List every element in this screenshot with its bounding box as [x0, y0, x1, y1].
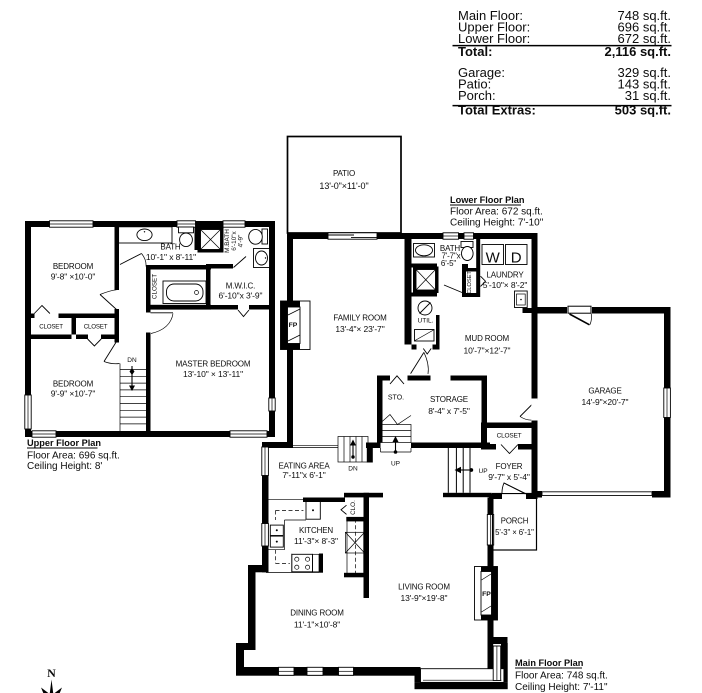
- svg-text:PORCH: PORCH: [501, 517, 528, 526]
- svg-text:BEDROOM: BEDROOM: [53, 380, 94, 389]
- svg-text:Total Extras:: Total Extras:: [458, 102, 536, 117]
- svg-text:BATH: BATH: [160, 243, 181, 252]
- svg-text:5'-10"× 8'-2": 5'-10"× 8'-2": [483, 280, 528, 290]
- svg-text:Floor Area: 696 sq.ft.: Floor Area: 696 sq.ft.: [27, 451, 120, 462]
- svg-text:Lower Floor Plan: Lower Floor Plan: [450, 195, 525, 205]
- svg-text:FP: FP: [482, 591, 491, 598]
- svg-text:MASTER BEDROOM: MASTER BEDROOM: [176, 360, 251, 369]
- svg-text:UTIL.: UTIL.: [418, 318, 434, 325]
- svg-text:Main Floor Plan: Main Floor Plan: [515, 658, 584, 668]
- svg-text:CLOSET: CLOSET: [152, 274, 159, 299]
- svg-text:13'-4"× 23'-7": 13'-4"× 23'-7": [335, 324, 384, 334]
- svg-text:4'-9": 4'-9": [238, 235, 245, 248]
- svg-text:FAMILY ROOM: FAMILY ROOM: [333, 314, 387, 323]
- svg-text:Ceiling Height: 7'-10": Ceiling Height: 7'-10": [450, 217, 544, 228]
- svg-text:13'-9"×19'-8": 13'-9"×19'-8": [401, 593, 448, 603]
- svg-text:8'-4" x 7'-5": 8'-4" x 7'-5": [428, 406, 470, 416]
- svg-text:9'-7" x 5'-4": 9'-7" x 5'-4": [488, 472, 530, 482]
- svg-text:CLOSET: CLOSET: [39, 324, 63, 331]
- svg-text:Ceiling Height: 7'-11": Ceiling Height: 7'-11": [515, 682, 608, 693]
- svg-text:Ceiling Height: 8': Ceiling Height: 8': [27, 461, 102, 472]
- svg-text:Floor Area: 748 sq.ft.: Floor Area: 748 sq.ft.: [515, 671, 608, 682]
- svg-text:FOYER: FOYER: [496, 462, 523, 471]
- svg-text:CLO.: CLO.: [350, 500, 357, 515]
- svg-text:D: D: [511, 250, 522, 267]
- svg-text:9'-9" ×10'-7": 9'-9" ×10'-7": [51, 389, 96, 399]
- svg-text:Porch:: Porch:: [458, 88, 496, 103]
- svg-text:11'-1"×10'-8": 11'-1"×10'-8": [294, 620, 340, 630]
- svg-text:N: N: [47, 666, 56, 680]
- svg-text:CLOSET: CLOSET: [467, 271, 473, 294]
- svg-text:UP: UP: [391, 461, 400, 468]
- svg-text:7'-11"x 6'-1": 7'-11"x 6'-1": [282, 470, 325, 480]
- svg-text:6'-5": 6'-5": [441, 259, 456, 268]
- svg-text:PATIO: PATIO: [333, 169, 355, 178]
- svg-text:14'-9"×20'-7": 14'-9"×20'-7": [582, 397, 629, 407]
- svg-text:DN: DN: [348, 466, 358, 473]
- svg-text:Floor Area: 672 sq.ft.: Floor Area: 672 sq.ft.: [450, 206, 543, 217]
- svg-text:MUD ROOM: MUD ROOM: [465, 334, 510, 343]
- svg-text:10'-7"×12'-7": 10'-7"×12'-7": [464, 346, 511, 356]
- svg-text:LIVING ROOM: LIVING ROOM: [398, 583, 450, 592]
- svg-text:BEDROOM: BEDROOM: [53, 262, 94, 271]
- svg-text:10'-1" x 8'-11": 10'-1" x 8'-11": [146, 252, 196, 262]
- svg-text:EATING AREA: EATING AREA: [278, 461, 330, 470]
- svg-text:31 sq.ft.: 31 sq.ft.: [625, 88, 671, 103]
- svg-text:LAUNDRY: LAUNDRY: [486, 271, 524, 280]
- svg-text:M.W.I.C.: M.W.I.C.: [226, 282, 255, 291]
- svg-text:13'-10" × 13'-11": 13'-10" × 13'-11": [183, 369, 243, 379]
- svg-text:Upper Floor Plan: Upper Floor Plan: [27, 438, 101, 448]
- svg-text:UP: UP: [479, 468, 488, 475]
- svg-text:STO.: STO.: [388, 395, 404, 402]
- svg-text:9'-8" ×10'-0": 9'-8" ×10'-0": [51, 272, 96, 282]
- svg-text:CLOSET: CLOSET: [497, 433, 522, 440]
- svg-text:STORAGE: STORAGE: [430, 395, 468, 404]
- svg-text:5'-3" × 6'-1": 5'-3" × 6'-1": [495, 528, 534, 537]
- svg-text:2,116 sq.ft.: 2,116 sq.ft.: [605, 44, 671, 59]
- svg-text:11'-3"× 8'-3": 11'-3"× 8'-3": [294, 536, 338, 546]
- svg-text:DN: DN: [127, 357, 137, 364]
- svg-text:Total:: Total:: [458, 44, 492, 59]
- svg-text:13'-0"×11'-0": 13'-0"×11'-0": [319, 181, 368, 191]
- svg-text:W: W: [486, 250, 501, 267]
- svg-text:6'-10"x 3'-9": 6'-10"x 3'-9": [219, 291, 263, 301]
- svg-text:CLOSET: CLOSET: [84, 324, 108, 331]
- svg-text:KITCHEN: KITCHEN: [299, 526, 333, 535]
- svg-text:GARAGE: GARAGE: [588, 387, 621, 396]
- svg-text:FP: FP: [289, 322, 298, 329]
- svg-text:503 sq.ft.: 503 sq.ft.: [615, 102, 671, 117]
- svg-text:M.BATH: M.BATH: [224, 229, 231, 253]
- svg-text:DINING ROOM: DINING ROOM: [290, 609, 344, 618]
